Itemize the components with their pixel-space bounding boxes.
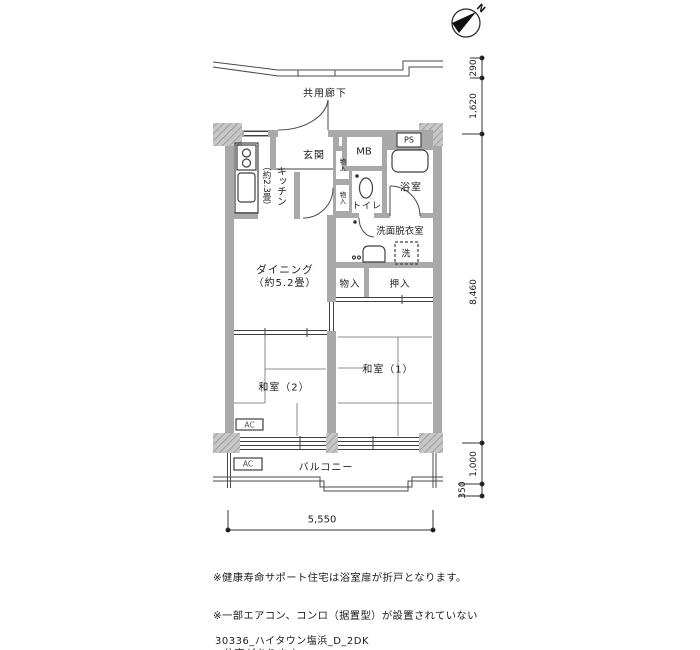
- bathtub-icon: [392, 150, 428, 172]
- room-label-washroom: 洗面脱衣室: [376, 223, 424, 237]
- dim-right-8460: 8,460: [469, 279, 479, 305]
- room-label-ps: PS: [404, 136, 414, 145]
- closet-label-1: 物入: [337, 159, 347, 172]
- toilet-bowl-icon: [360, 178, 373, 198]
- room-label-kitchen: キッチン: [273, 166, 288, 206]
- room-label-entrance: 玄関: [303, 147, 325, 162]
- note-line: ※健康寿命サポート住宅は浴室扉が折戸となります。: [213, 572, 478, 585]
- toilet-door-arc: [359, 218, 374, 237]
- room-label-washitsu2: 和室（2）: [258, 379, 309, 394]
- entrance-door-arc: [303, 188, 333, 218]
- faucet-dot-icon: [358, 256, 361, 259]
- room-label-washitsu1: 和室（1）: [362, 361, 413, 376]
- dim-right-350: 350: [458, 481, 468, 498]
- dim-right-1620: 1,620: [469, 93, 479, 119]
- dining-name: ダイニング: [254, 264, 317, 277]
- ac-label-balcony: AC: [243, 460, 253, 469]
- plan-id-code: 30336_ハイタウン塩浜_D_2DK: [215, 632, 369, 647]
- faucet-dot-icon: [353, 256, 356, 259]
- dining-size: （約5.2畳）: [254, 277, 317, 290]
- door-hinge-dot: [353, 220, 357, 224]
- corridor-label: 共用廊下: [303, 85, 347, 100]
- washbasin-icon: [363, 246, 385, 262]
- closet-label-2: 物入: [337, 192, 347, 205]
- room-label-bath: 浴室: [400, 179, 422, 194]
- room-label-balcony: バルコニー: [299, 459, 354, 474]
- corridor-railing: [213, 61, 443, 76]
- room-label-storage: 物入: [339, 276, 360, 290]
- stove-burner-icon: [243, 149, 251, 157]
- note-line: ※一部エアコン、コンロ（据置型）が設置されていない: [213, 610, 478, 623]
- room-label-kitchen-size: （約2.3畳）: [260, 162, 272, 210]
- room-label-dining: ダイニング （約5.2畳）: [254, 264, 317, 290]
- room-label-oshiire: 押入: [389, 276, 410, 290]
- room-label-toilet: トイレ: [352, 199, 382, 212]
- compass-icon: [452, 9, 480, 37]
- stove-burner-icon: [243, 159, 251, 167]
- compass-needle-icon: [452, 12, 476, 33]
- dim-right-290: 290: [469, 59, 479, 76]
- door-hinge-dot: [355, 174, 359, 178]
- dim-bottom-5550: 5,550: [308, 515, 337, 526]
- dim-right-1000: 1,000: [469, 451, 479, 477]
- kitchen-sink-icon: [238, 173, 255, 202]
- front-door-arc: [278, 100, 328, 130]
- floor-plan-page: N 共用廊下 玄関 MB PS キッチン （約2.3畳） 物入 物入 トイレ 浴…: [0, 0, 700, 650]
- room-label-mb: MB: [356, 147, 372, 158]
- washer-label: 洗: [401, 247, 411, 260]
- ac-label-room: AC: [244, 420, 254, 429]
- dimension-lines: [226, 56, 484, 532]
